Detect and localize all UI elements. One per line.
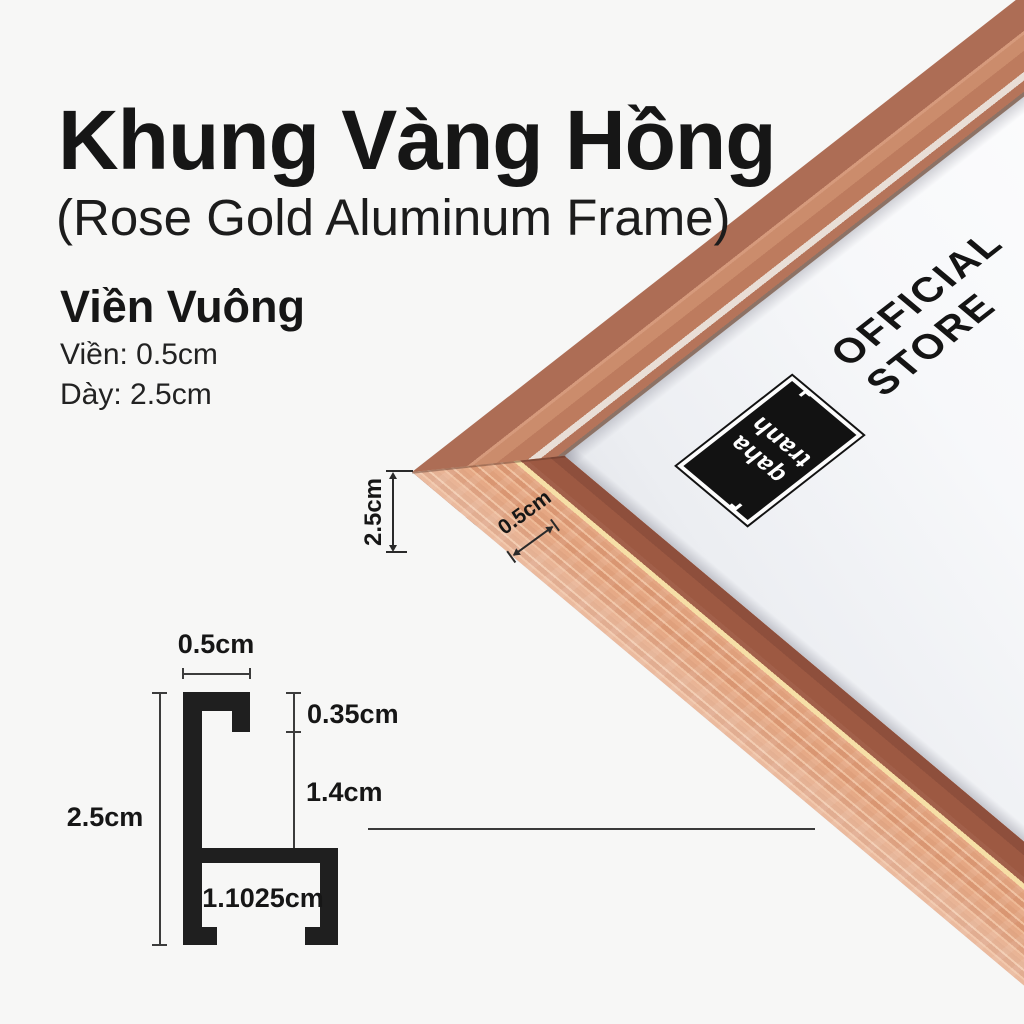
tick-mark [152,944,167,946]
dimension-line [182,673,250,675]
product-spec-page: ⌜ tranh qaha ⌟ OFFICIAL STORE Khung Vàng… [0,0,1024,1024]
page-subtitle: (Rose Gold Aluminum Frame) [56,188,731,247]
profile-lip-hook [232,711,250,732]
logo-corner-bracket-icon: ⌟ [784,388,814,412]
dimension-line [293,692,295,848]
profile-bottom-bar [183,848,338,863]
profile-height-label: 2.5cm [55,802,155,833]
profile-lip-label: 0.35cm [307,699,399,730]
profile-left-foot [202,927,217,945]
page-title: Khung Vàng Hồng [58,92,776,189]
tick-mark [249,668,251,679]
spec-heading: Viền Vuông [60,281,305,333]
profile-right-foot [305,927,320,945]
leader-line [368,828,815,830]
spec-border-value: Viền: 0.5cm [60,338,218,372]
tick-mark [152,692,167,694]
dimension-line [159,692,161,945]
profile-top-width-label: 0.5cm [165,629,267,660]
profile-bottom-width-label: 1.1025cm [195,883,331,914]
depth-dimension-label: 2.5cm [332,470,416,554]
profile-channel-label: 1.4cm [306,777,383,808]
tick-mark [286,692,301,694]
tick-mark [182,668,184,679]
tick-mark [286,731,301,733]
spec-depth-value: Dày: 2.5cm [60,378,212,412]
logo-corner-bracket-icon: ⌜ [726,490,756,514]
logo-wordmark: tranh qaha [721,411,818,490]
